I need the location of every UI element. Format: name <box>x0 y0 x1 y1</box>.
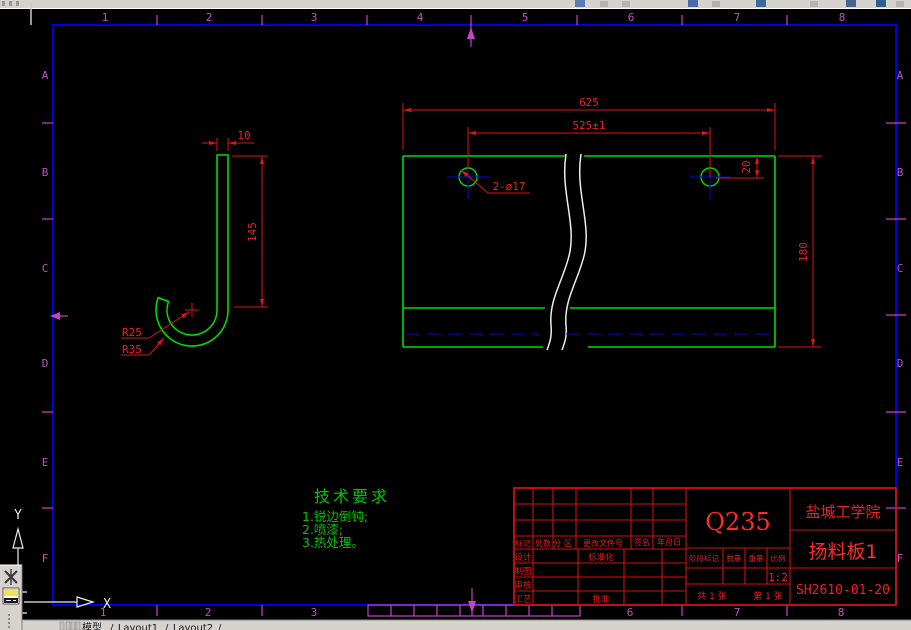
tb-label-mark: 标记 <box>515 538 531 548</box>
zone-row-label: B <box>42 166 49 179</box>
zone-col-label: 8 <box>839 11 846 24</box>
tb-label-review: 审核 <box>514 580 532 591</box>
tb-label-stage-mark: 阶段标记 <box>689 553 719 563</box>
tab-nav-last-button[interactable] <box>76 622 80 630</box>
top-toolbar-strip <box>0 0 911 9</box>
zone-col-label: 2 <box>206 11 213 24</box>
tb-label-approve: 批准 <box>592 594 610 605</box>
zone-col-label: 6 <box>628 11 635 24</box>
ucs-x-label: X <box>103 597 111 612</box>
zone-row-label: D <box>42 357 49 370</box>
dim-text-r35: R35 <box>122 343 142 356</box>
dim-text-hook-height: 145 <box>246 222 259 242</box>
zone-row-label: F <box>897 552 904 565</box>
tb-label-standardization: 标准化 <box>588 552 614 563</box>
zone-col-label: 7 <box>734 11 741 24</box>
layer-preview-icon[interactable] <box>3 588 19 604</box>
zone-row-label: B <box>897 166 904 179</box>
tab-layout1[interactable]: Layout1 <box>118 623 158 630</box>
tb-drawing-number: SH2610-01-20 <box>796 583 890 598</box>
dim-text-hook-width: 10 <box>237 129 250 142</box>
tb-label-draft: 制图 <box>514 566 531 577</box>
tb-part-name: 扬料板1 <box>808 541 877 563</box>
ucs-y-label: Y <box>14 508 22 523</box>
tb-sheet-total: 共 1 张 <box>697 591 726 602</box>
zone-col-label: 6 <box>627 606 634 619</box>
tb-label-date: 年月日 <box>657 537 681 547</box>
zone-row-label: E <box>897 456 904 469</box>
tb-label-zone: 分区 <box>553 539 575 548</box>
zone-row-label: D <box>897 357 904 370</box>
tech-req-title: 技术要求 <box>314 487 390 506</box>
tb-label-scale: 比例 <box>771 553 786 563</box>
zone-col-label: 8 <box>838 606 845 619</box>
zone-col-label: 7 <box>734 606 741 619</box>
dim-text-hole-spacing: 525±1 <box>572 119 605 132</box>
tab-nav-prev-button[interactable] <box>66 622 70 630</box>
dim-text-plate-height: 180 <box>797 242 810 262</box>
drawing-canvas[interactable]: 1 2 3 4 5 6 7 8 1 2 3 6 7 8 A B C D E F … <box>0 0 911 630</box>
tb-scale-value: 1:2 <box>768 571 788 584</box>
autocad-window: 1 2 3 4 5 6 7 8 1 2 3 6 7 8 A B C D E F … <box>0 0 911 630</box>
tab-nav-next-button[interactable] <box>71 622 75 630</box>
zone-row-label: C <box>897 262 904 275</box>
zone-row-label: C <box>42 262 49 275</box>
zone-row-label: E <box>42 456 49 469</box>
tb-label-signature: 签名 <box>634 537 650 547</box>
tab-layout2[interactable]: Layout2 <box>173 623 213 630</box>
tb-label-count: 处数 <box>535 538 551 548</box>
tb-sheet-page: 第 1 张 <box>753 590 782 602</box>
tb-label-process: 工艺 <box>514 595 531 605</box>
left-dock-panel <box>0 565 22 630</box>
tb-label-design: 设计 <box>514 552 532 563</box>
tab-nav-first-button[interactable] <box>60 622 64 630</box>
tb-organization: 盐城工学院 <box>805 503 880 521</box>
zone-row-label: A <box>897 69 904 82</box>
tb-label-quantity: 数量 <box>727 553 742 563</box>
zone-col-label: 3 <box>311 606 318 619</box>
dim-text-holes: 2-ø17 <box>492 180 525 193</box>
status-bar: 模型 / Layout1 / Layout2 / <box>0 620 911 630</box>
dim-text-r25: R25 <box>122 326 142 339</box>
tab-model[interactable]: 模型 <box>82 621 102 630</box>
tb-label-weight: 重量 <box>749 554 764 563</box>
zone-col-label: 3 <box>311 11 318 24</box>
tech-req-item: 3.热处理。 <box>302 535 364 550</box>
tb-material: Q235 <box>705 508 770 536</box>
zone-row-label: A <box>42 69 49 82</box>
zone-row-label: F <box>42 552 49 565</box>
zone-col-label: 4 <box>417 11 424 24</box>
dim-text-hole-offset: 20 <box>740 160 753 173</box>
zone-col-label: 1 <box>102 11 109 24</box>
dim-text-plate-width: 625 <box>579 96 599 109</box>
zone-col-label: 2 <box>205 606 212 619</box>
tb-label-change-file: 更改文件号 <box>583 538 623 548</box>
zone-col-label: 5 <box>522 11 529 24</box>
